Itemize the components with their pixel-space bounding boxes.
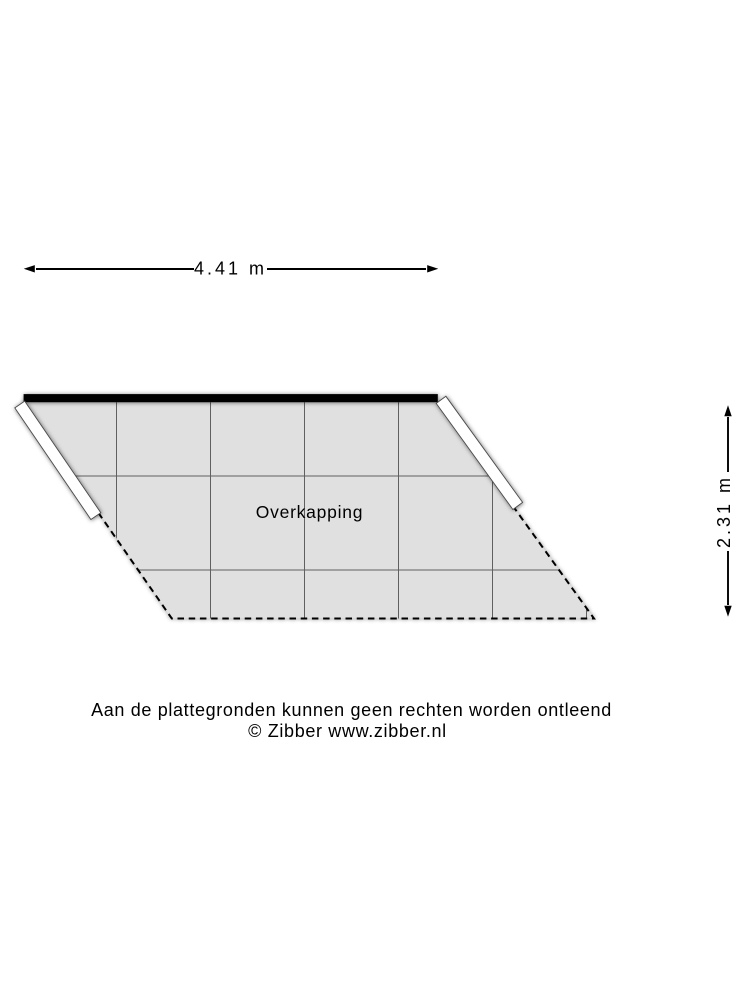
svg-text:Aan de plattegronden kunnen ge: Aan de plattegronden kunnen geen rechten…	[91, 700, 612, 720]
svg-text:© Zibber www.zibber.nl: © Zibber www.zibber.nl	[248, 721, 447, 741]
svg-text:2.31 m: 2.31 m	[714, 475, 734, 548]
svg-text:Overkapping: Overkapping	[256, 502, 363, 522]
svg-text:4.41 m: 4.41 m	[194, 259, 267, 279]
